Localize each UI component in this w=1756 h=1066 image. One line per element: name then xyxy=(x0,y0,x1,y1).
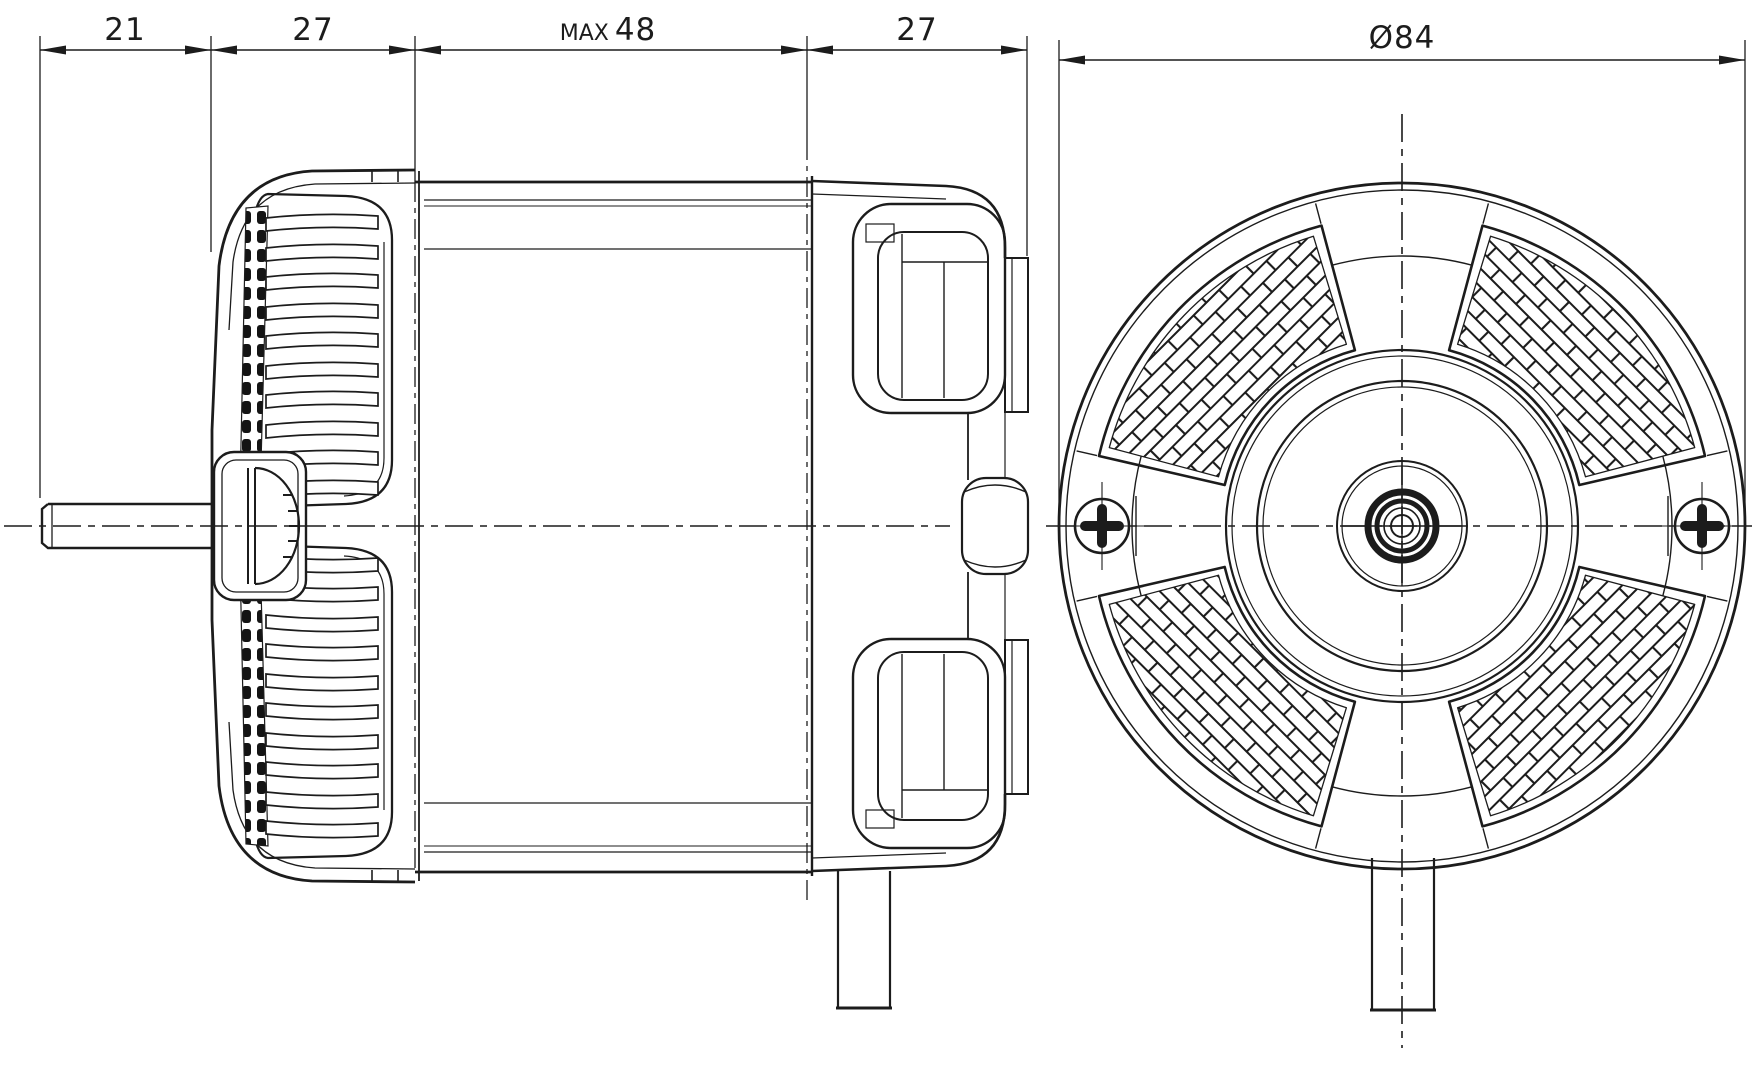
dimension-arrows xyxy=(40,46,1745,65)
dim-label-body-length: MAX48 xyxy=(560,12,657,48)
side-view xyxy=(4,140,1028,1008)
dim-label-outer-diameter: Ø84 xyxy=(1369,20,1436,56)
cable-side xyxy=(836,871,892,1008)
dim-label-shaft: 21 xyxy=(104,12,145,48)
rear-bearing-boss xyxy=(962,412,1028,640)
front-view xyxy=(1046,114,1752,1048)
dim-label-front-depth: 27 xyxy=(292,12,333,48)
bracket-plate-top xyxy=(1005,258,1028,412)
mounting-bracket-top xyxy=(853,204,1028,413)
mounting-bracket-bottom xyxy=(853,639,1028,848)
dim-label-rear-depth: 27 xyxy=(896,12,937,48)
bracket-plate-bottom xyxy=(1005,640,1028,794)
cable-front xyxy=(1370,858,1436,1010)
motor-technical-drawing: 21 27 MAX48 27 Ø84 xyxy=(0,0,1756,1066)
drawing-canvas: 21 27 MAX48 27 Ø84 xyxy=(0,0,1756,1066)
